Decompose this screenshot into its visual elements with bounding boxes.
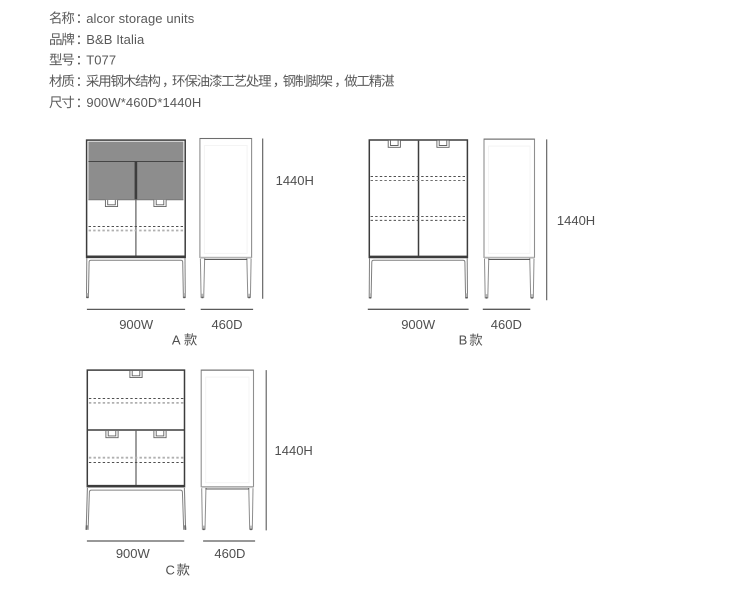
svg-text:900W: 900W xyxy=(119,317,154,332)
svg-text:T077: T077 xyxy=(86,53,116,68)
svg-text:B&B Italia: B&B Italia xyxy=(86,32,145,47)
svg-text:alcor storage units: alcor storage units xyxy=(86,11,195,26)
svg-text:1440H: 1440H xyxy=(557,213,595,228)
svg-text:900W*460D*1440H: 900W*460D*1440H xyxy=(86,95,201,110)
svg-text:1440H: 1440H xyxy=(275,443,313,458)
svg-text:1440H: 1440H xyxy=(276,173,314,188)
svg-text:C: C xyxy=(166,563,175,578)
svg-text:900W: 900W xyxy=(116,546,151,561)
svg-text:460D: 460D xyxy=(211,317,242,332)
svg-text:A: A xyxy=(172,333,181,348)
svg-text:B: B xyxy=(459,333,468,348)
svg-text:460D: 460D xyxy=(491,317,522,332)
svg-text:460D: 460D xyxy=(214,546,245,561)
svg-text:900W: 900W xyxy=(401,317,436,332)
